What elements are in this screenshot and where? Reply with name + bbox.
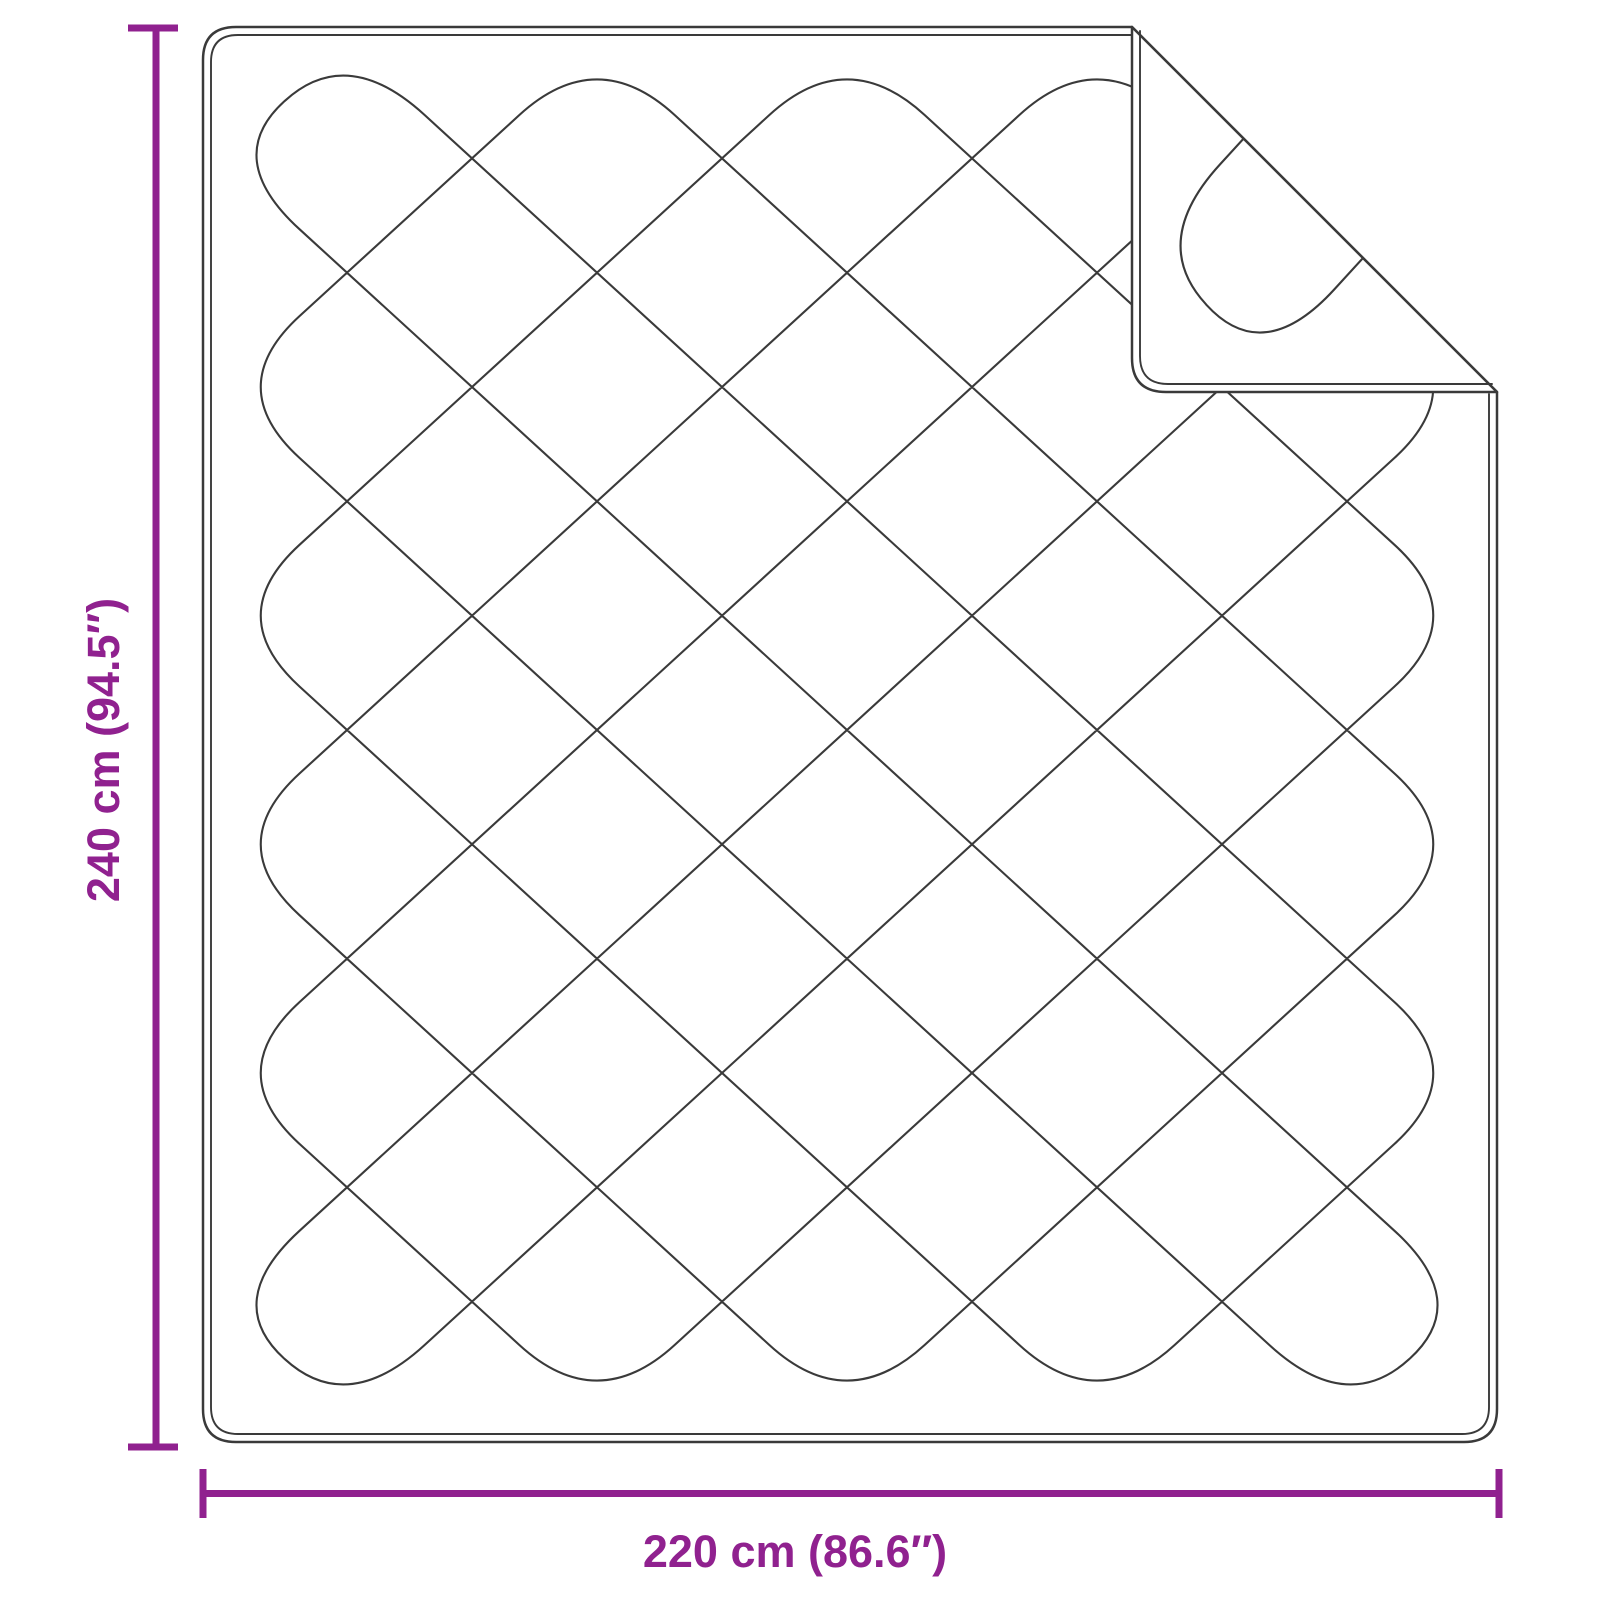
dimension-diagram-canvas: 240 cm (94.5″) 220 cm (86.6″) xyxy=(0,0,1600,1600)
vertical-dimension: 240 cm (94.5″) xyxy=(78,25,178,1451)
horizontal-dimension-line xyxy=(200,1490,1503,1497)
horizontal-dimension-tick-left xyxy=(200,1469,207,1518)
vertical-dimension-label: 240 cm (94.5″) xyxy=(78,598,129,902)
vertical-dimension-tick-bottom xyxy=(128,1444,178,1451)
blanket-dimension-diagram: 240 cm (94.5″) 220 cm (86.6″) xyxy=(0,0,1600,1600)
vertical-dimension-line xyxy=(153,27,160,1447)
horizontal-dimension-label: 220 cm (86.6″) xyxy=(643,1526,947,1577)
folded-corner-flap xyxy=(1132,27,1497,392)
horizontal-dimension: 220 cm (86.6″) xyxy=(200,1469,1503,1577)
horizontal-dimension-tick-right xyxy=(1496,1469,1503,1518)
vertical-dimension-tick-top xyxy=(128,25,178,32)
